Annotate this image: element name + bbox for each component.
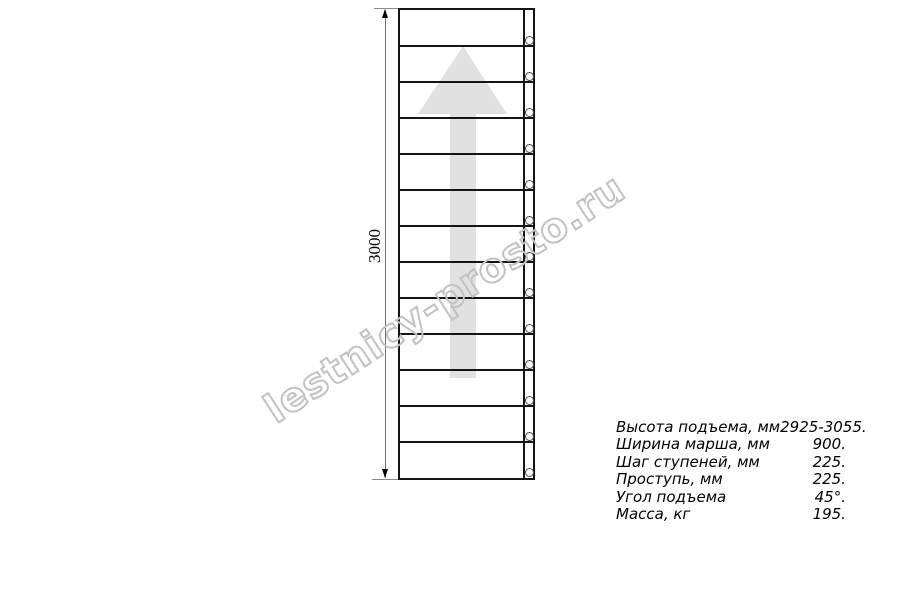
spec-value: 2925-3055.: [780, 419, 867, 436]
dimension-line: [385, 10, 386, 478]
dimension-arrowhead-top-icon: [382, 9, 388, 18]
step-line: [400, 405, 533, 407]
bolt-circle: [525, 396, 534, 405]
spec-row: Высота подъема, мм2925-3055.: [616, 419, 846, 436]
spec-label: Ширина марша, мм: [616, 436, 770, 453]
spec-label: Проступь, мм: [616, 471, 723, 488]
spec-row: Ширина марша, мм900.: [616, 436, 846, 453]
step-line: [400, 153, 533, 155]
stair-flight-drawing: [398, 8, 535, 480]
spec-label: Шаг ступеней, мм: [616, 454, 760, 471]
spec-table: Высота подъема, мм2925-3055.Ширина марша…: [616, 419, 846, 523]
spec-row: Шаг ступеней, мм225.: [616, 454, 846, 471]
bolt-circle: [525, 468, 534, 477]
page-canvas: 3000 lestnicy-prosto.ru Высота подъема, …: [0, 0, 900, 600]
bolt-circle: [525, 324, 534, 333]
bolt-circle: [525, 360, 534, 369]
bolt-circle: [525, 36, 534, 45]
bolt-circle: [525, 72, 534, 81]
step-line: [400, 369, 533, 371]
bolt-circle: [525, 144, 534, 153]
spec-row: Масса, кг195.: [616, 506, 846, 523]
bolt-circle: [525, 108, 534, 117]
dimension-arrowhead-bottom-icon: [382, 469, 388, 478]
up-arrow-shape: [418, 46, 507, 378]
spec-row: Проступь, мм225.: [616, 471, 846, 488]
step-line: [400, 45, 533, 47]
spec-value: 195.: [813, 506, 846, 523]
spec-value: 45°.: [815, 489, 846, 506]
bolt-circle: [525, 216, 534, 225]
bolt-circle: [525, 252, 534, 261]
bolt-circle: [525, 432, 534, 441]
step-line: [400, 261, 533, 263]
step-line: [400, 333, 533, 335]
spec-value: 900.: [813, 436, 846, 453]
step-line: [400, 297, 533, 299]
step-line: [400, 81, 533, 83]
step-line: [400, 189, 533, 191]
bolt-circle: [525, 180, 534, 189]
bolt-circle: [525, 288, 534, 297]
step-line: [400, 441, 533, 443]
spec-label: Угол подъема: [616, 489, 726, 506]
dimension-extension-bottom: [372, 479, 398, 480]
spec-label: Масса, кг: [616, 506, 690, 523]
spec-row: Угол подъема45°.: [616, 489, 846, 506]
dimension-label: 3000: [365, 226, 385, 266]
step-line: [400, 225, 533, 227]
spec-value: 225.: [813, 454, 846, 471]
spec-label: Высота подъема, мм: [616, 419, 780, 436]
step-line: [400, 117, 533, 119]
spec-value: 225.: [813, 471, 846, 488]
